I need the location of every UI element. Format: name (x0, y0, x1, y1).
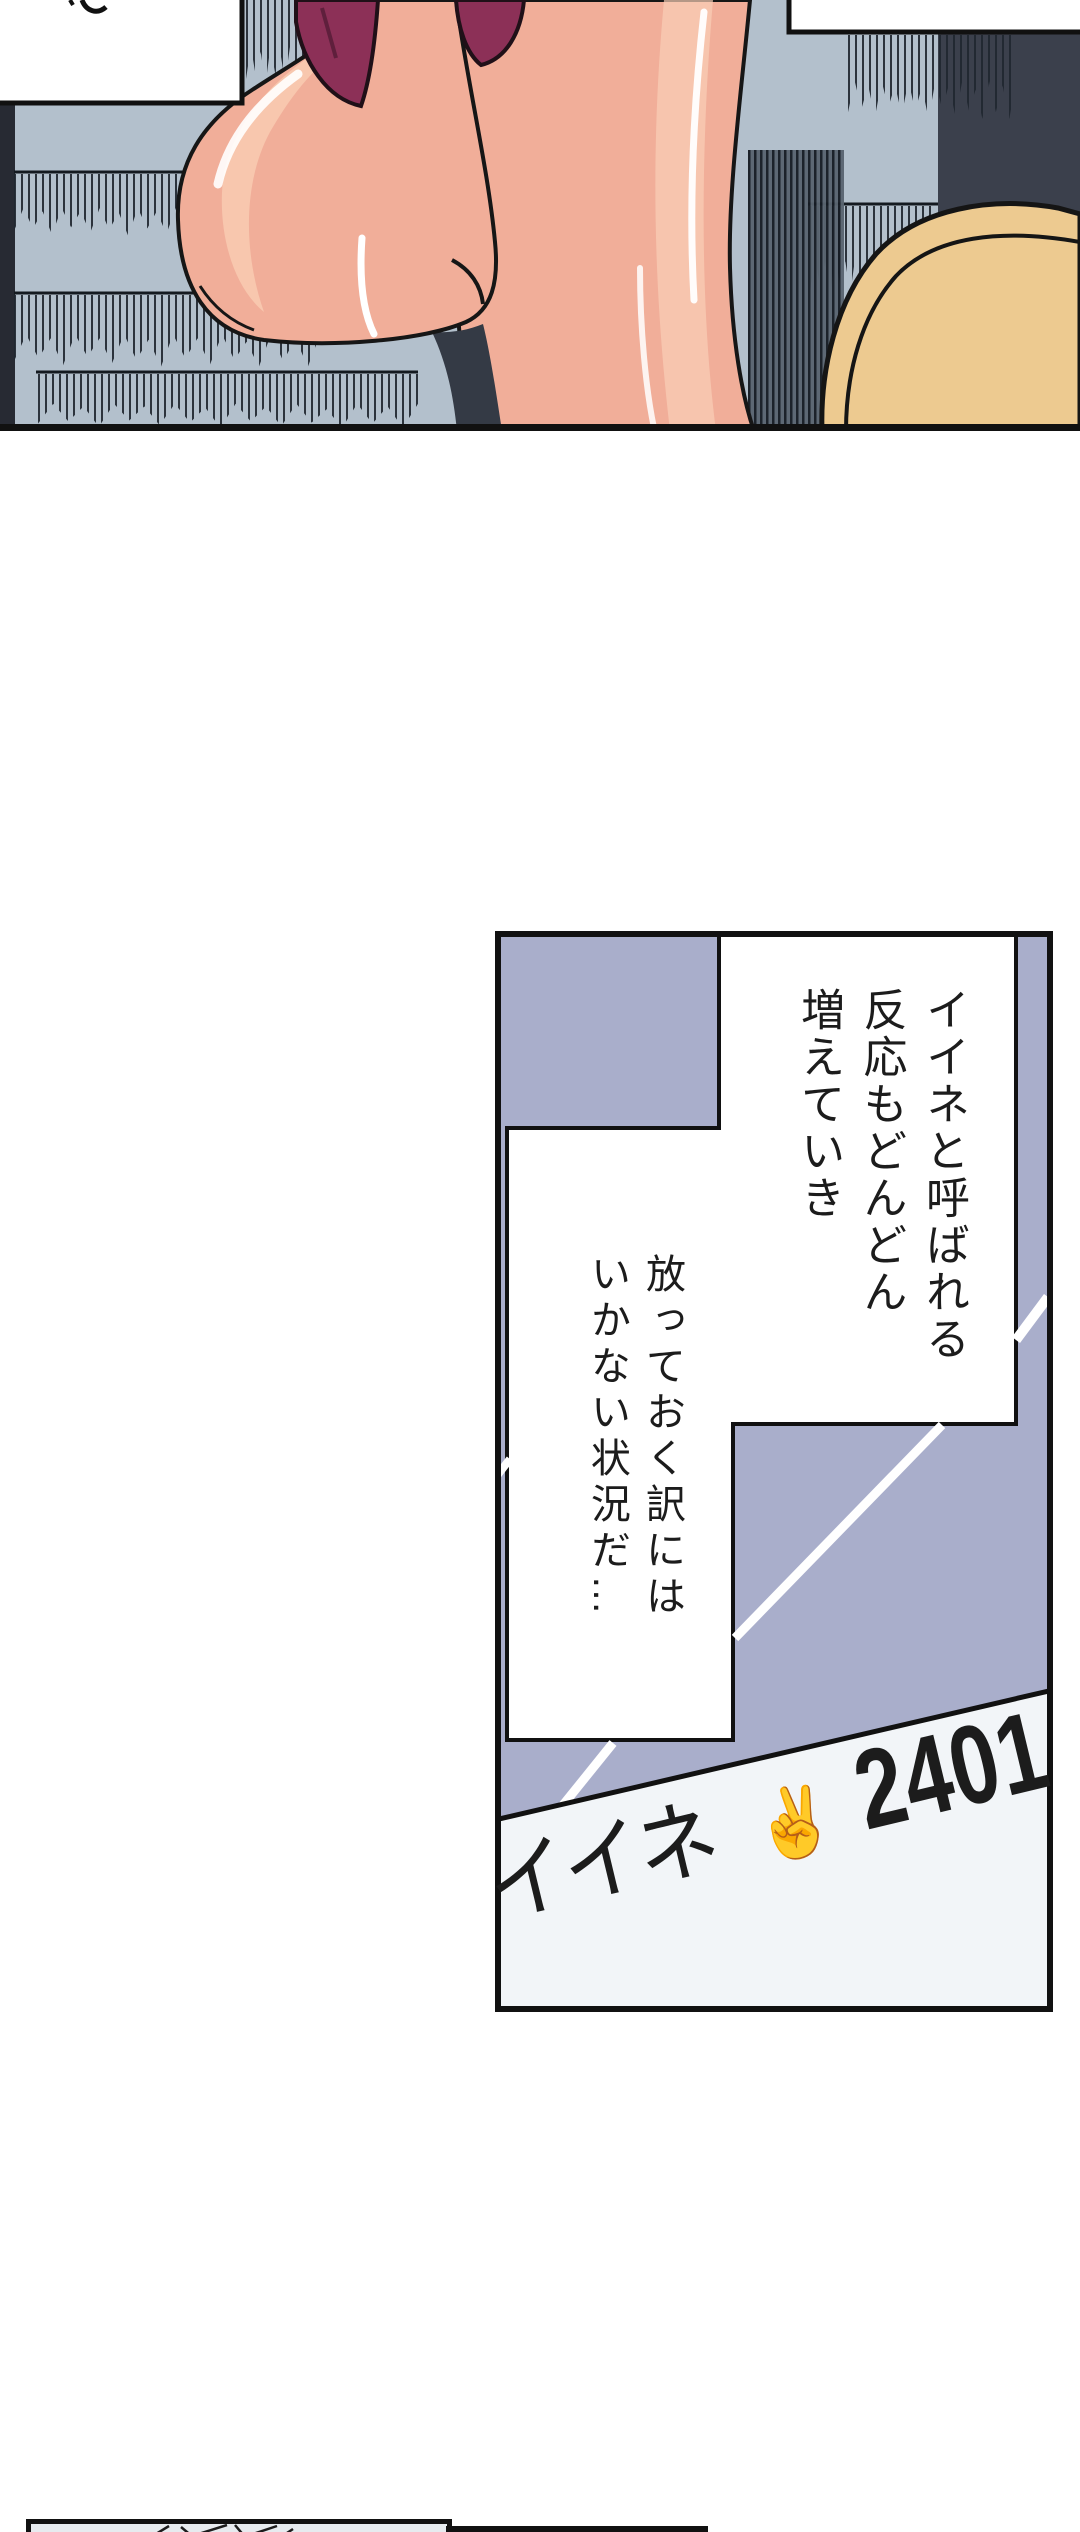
narration-text-likes-increasing: イイネと呼ばれる 反応もどんどん 増えていき (787, 987, 974, 1383)
speech-bubble-top-left (0, 0, 242, 103)
next-panel-preview-left (26, 2519, 452, 2532)
speech-bubble-top-right (789, 0, 1080, 32)
next-panel-line-art (31, 2524, 447, 2532)
narration-line: 放っておく訳には (634, 1253, 689, 1653)
top-panel-legs-on-stairs (0, 0, 1080, 431)
narration-line: イイネと呼ばれる (912, 987, 974, 1383)
next-panel-preview-right (446, 2526, 708, 2532)
narration-line: 反応もどんどん (849, 987, 911, 1383)
middle-panel-narration: イイネと呼ばれる 反応もどんどん 増えていき 放っておく訳には いかない状況だ…… (495, 931, 1053, 2012)
manga-page: イイネと呼ばれる 反応もどんどん 増えていき 放っておく訳には いかない状況だ…… (0, 0, 1080, 2532)
legs-foreground-art (0, 0, 1080, 431)
narration-text-cannot-ignore: 放っておく訳には いかない状況だ… (579, 1253, 689, 1653)
narration-line: 増えていき (787, 987, 849, 1383)
peace-hand-icon: ✌ (744, 1774, 845, 1872)
narration-line: いかない状況だ… (579, 1253, 634, 1653)
panel-border (0, 424, 1080, 431)
